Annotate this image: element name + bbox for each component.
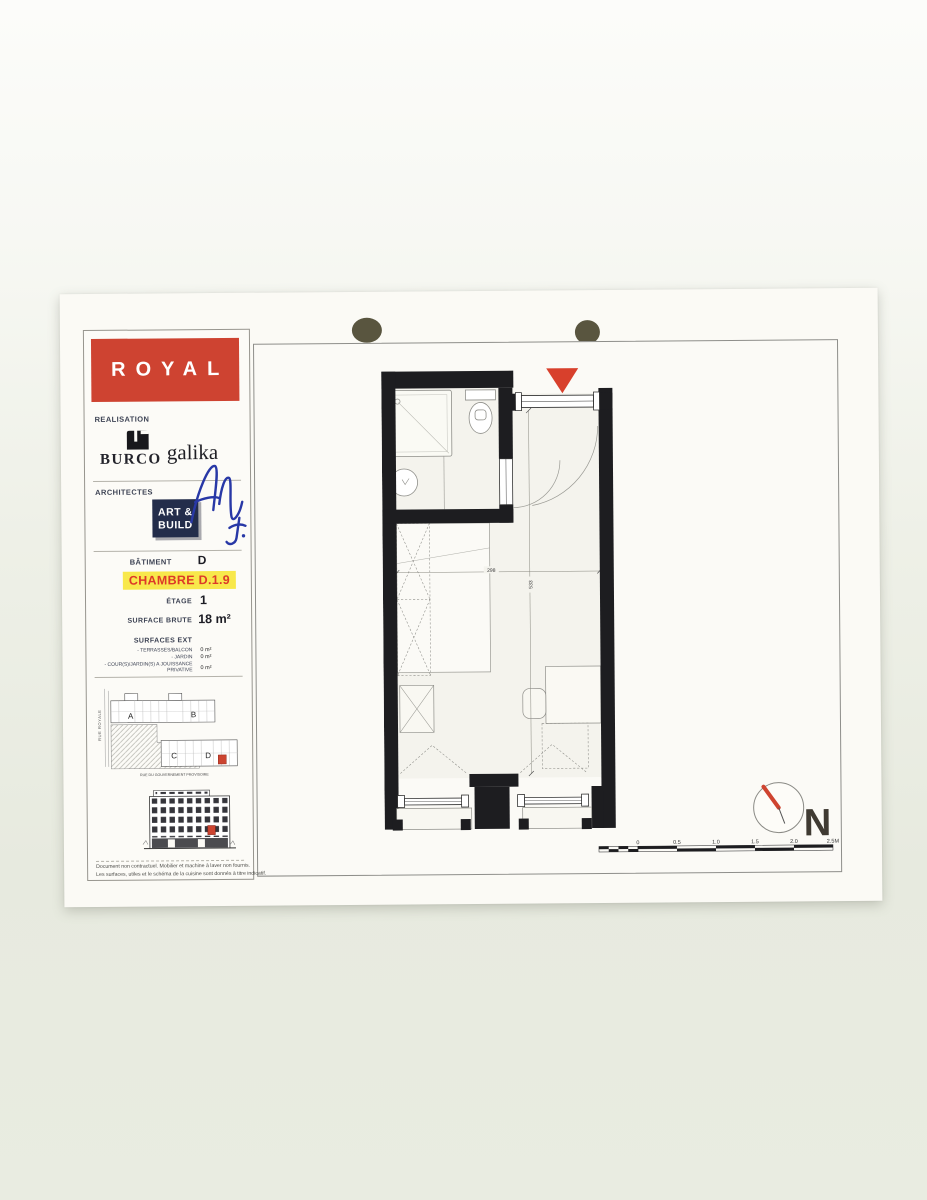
burco-wordmark: BURCO (100, 451, 162, 468)
window-left (398, 795, 469, 808)
divider (95, 676, 243, 678)
hole-punch-left (352, 318, 382, 343)
paper-sheet: ROYAL REALISATION BURCO galika ARCHITECT… (60, 288, 883, 907)
divider (94, 550, 242, 552)
photographed-plan-sheet: ROYAL REALISATION BURCO galika ARCHITECT… (0, 0, 927, 1200)
site-plan-thumbnail: RUE ROYALE A B C (95, 682, 244, 779)
surface-brute-label: SURFACE BRUTE (96, 617, 192, 625)
architectes-label: ARCHITECTES (95, 487, 153, 496)
street-bottom-label: RUE DU GOUVERNEMENT PROVISOIRE (140, 773, 209, 778)
svg-text:1.0: 1.0 (712, 840, 720, 846)
cabinet (400, 685, 434, 732)
chair (523, 688, 546, 718)
unit-location-marker (218, 755, 226, 764)
disclaimer-line2: Les surfaces, utiles et le schéma de la … (96, 871, 248, 880)
surfaces-ext-item-value: 0 m² (200, 654, 211, 660)
surfaces-ext-item-label: - COUR(S)/JARDIN(S) A JOUISSANCE PRIVATI… (96, 661, 192, 674)
unit-badge: CHAMBRE D.1.9 (123, 571, 236, 590)
disclaimer: Document non contractuel. Mobilier et ma… (96, 863, 248, 880)
unit-elevation-marker (208, 826, 216, 835)
scale-bar: 0 0.5 1.0 1.5 2.0 2.5M (588, 837, 844, 857)
project-logo: ROYAL (91, 338, 239, 402)
batiment-value: D (198, 553, 207, 567)
window-right (518, 794, 589, 807)
shower (386, 390, 452, 457)
elevation-thumbnail (141, 786, 238, 859)
scale-checker (599, 846, 638, 852)
etage-value: 1 (200, 593, 207, 607)
building-c-label: C (171, 751, 177, 760)
dimension-height-label: 533 (528, 580, 534, 589)
svg-text:2.0: 2.0 (790, 839, 798, 845)
svg-text:0.5: 0.5 (673, 840, 681, 846)
bed (396, 523, 490, 673)
surfaces-ext-item-label: - JARDIN (96, 654, 192, 661)
desk (546, 666, 601, 723)
burco-logo-icon (127, 431, 149, 450)
svg-text:1.5: 1.5 (751, 839, 759, 845)
building-block-north (111, 693, 215, 723)
architect-signature (185, 458, 248, 550)
title-block: ROYAL REALISATION BURCO galika ARCHITECT… (83, 329, 254, 881)
svg-text:0: 0 (636, 840, 639, 846)
balcony-left (397, 808, 472, 830)
north-arrow: N (751, 777, 852, 846)
surfaces-ext-item-label: - TERRASSES/BALCON (96, 647, 192, 654)
signature-dot (242, 534, 245, 537)
scale-segments (638, 845, 833, 852)
surfaces-ext-item-value: 0 m² (201, 665, 212, 671)
street-left-label: RUE ROYALE (97, 709, 102, 741)
divider-dashed (96, 860, 244, 862)
surfaces-ext-label: SURFACES EXT (96, 637, 192, 645)
floor-plan: 298 533 (381, 366, 620, 838)
balcony-right (523, 807, 592, 829)
building-d-label: D (205, 751, 211, 760)
etage-label: ÉTAGE (96, 598, 192, 606)
building-a-label: A (128, 712, 134, 721)
realisation-label: REALISATION (95, 415, 150, 424)
building-b-label: B (191, 710, 196, 719)
surfaces-ext-item-value: 0 m² (200, 647, 211, 653)
svg-text:2.5M: 2.5M (827, 839, 840, 845)
dimension-width-label: 298 (487, 568, 496, 574)
batiment-label: BÂTIMENT (130, 557, 172, 566)
surface-brute-value: 18 m² (198, 612, 231, 626)
